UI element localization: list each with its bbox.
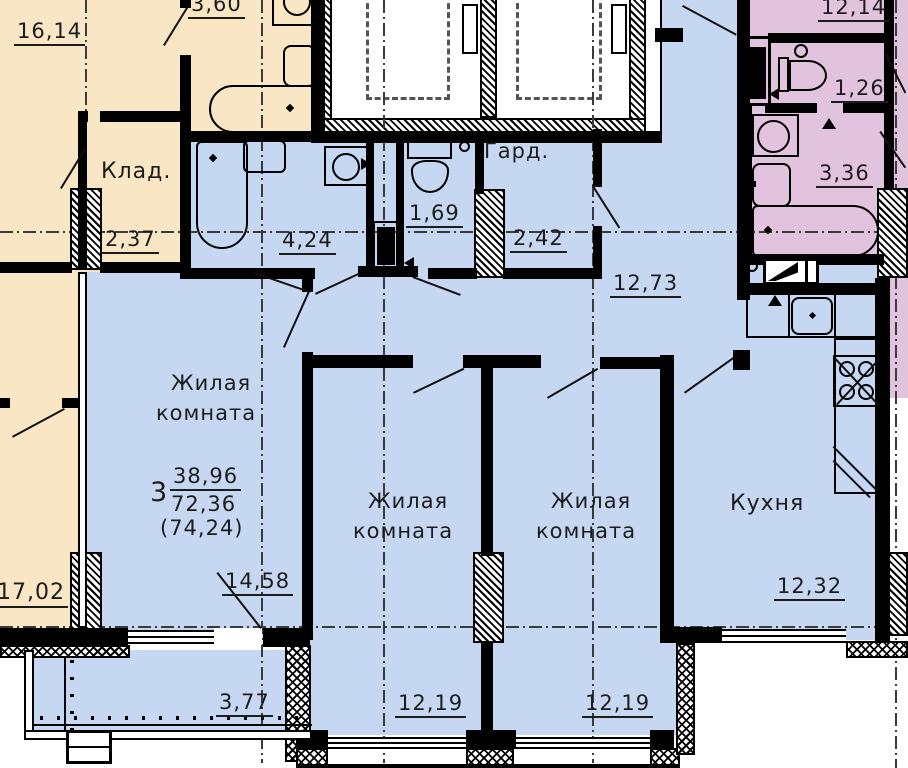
window — [128, 630, 214, 644]
area-2-42: 2,42 — [510, 227, 567, 253]
wall — [660, 355, 674, 643]
summary-living-area: 38,96 — [170, 465, 241, 491]
column — [473, 552, 504, 643]
room2-name-line1: Жилая — [368, 490, 448, 512]
wall — [843, 103, 884, 113]
exterior-wall — [846, 641, 908, 658]
exterior-wall — [0, 645, 130, 658]
label-klad: Клад. — [101, 160, 171, 183]
wall — [463, 355, 481, 368]
toilet-bowl — [789, 60, 827, 91]
balcony-rail — [64, 658, 66, 732]
vent-circle — [746, 260, 758, 272]
toilet-tank — [778, 57, 789, 92]
door-direction-marker — [404, 257, 414, 269]
area-17-02: 17,02 — [0, 581, 68, 608]
summary-rooms-count: 3 — [150, 479, 168, 507]
area-12-19-a: 12,19 — [395, 692, 466, 718]
wall — [305, 355, 413, 368]
vent-circle — [459, 141, 470, 152]
washing-machine-drum — [757, 120, 790, 153]
wall — [191, 268, 315, 279]
axis-line — [0, 626, 890, 628]
wall — [0, 398, 10, 408]
faucet — [260, 136, 268, 142]
elevator-wall — [480, 0, 497, 118]
party-wall — [78, 272, 87, 628]
window — [328, 737, 467, 749]
area-3-60: 3,60 — [188, 0, 245, 19]
wall — [660, 627, 722, 643]
summary-total-area: 72,36 — [171, 493, 236, 515]
wall — [481, 368, 493, 556]
faucet — [748, 181, 756, 187]
label-gard: Гард. — [484, 140, 549, 162]
door-direction-marker — [361, 158, 371, 170]
wall — [296, 764, 680, 768]
bathtub — [196, 141, 248, 249]
door-direction-marker — [769, 88, 779, 100]
wall — [302, 352, 313, 640]
wall — [655, 28, 683, 42]
elevator-door-frame — [611, 4, 627, 54]
washing-machine-drum — [332, 153, 360, 181]
area-12-14: 12,14 — [818, 0, 889, 22]
elevator-door-frame — [462, 4, 478, 54]
exterior-wall — [676, 643, 695, 755]
door-direction-marker — [822, 118, 836, 129]
balcony-door-gap — [214, 628, 262, 645]
wall — [100, 262, 188, 273]
area-12-73: 12,73 — [610, 272, 681, 298]
balcony-glazing — [24, 650, 34, 740]
wall — [503, 268, 602, 279]
wall — [428, 268, 477, 279]
sink — [752, 163, 791, 207]
label-kitchen: Кухня — [730, 492, 804, 515]
wall — [481, 355, 541, 368]
wall — [78, 111, 87, 269]
bathtub — [209, 85, 316, 133]
sink — [243, 140, 286, 173]
area-16-14: 16,14 — [14, 20, 85, 46]
electrical-panel-divider — [805, 258, 808, 285]
wall — [765, 103, 817, 113]
room1-name-line2: комната — [156, 402, 256, 424]
room3-name-line1: Жилая — [551, 490, 631, 512]
duct — [748, 47, 766, 99]
wall — [600, 357, 666, 369]
floor-plan: 16,14Клад.2,373,6017,024,241,69Гард.2,42… — [0, 0, 908, 768]
unit-left-room-fill — [0, 270, 80, 630]
toilet-tank — [407, 141, 452, 159]
wall — [0, 628, 128, 645]
area-3-36: 3,36 — [816, 162, 873, 188]
area-4-24: 4,24 — [279, 229, 336, 255]
window — [514, 737, 651, 749]
sink — [283, 45, 316, 87]
area-12-19-b: 12,19 — [582, 692, 653, 718]
wall — [733, 350, 750, 370]
elevator-car — [366, 0, 450, 100]
wall — [475, 140, 484, 194]
room1-name-line1: Жилая — [171, 372, 251, 394]
area-1-69: 1,69 — [406, 202, 463, 228]
vent-circle — [794, 44, 808, 58]
elevator-car — [516, 0, 602, 100]
wall — [481, 643, 493, 733]
duct — [377, 227, 395, 265]
counter-divider — [788, 293, 790, 338]
counter-divider — [834, 293, 836, 338]
window — [722, 629, 846, 643]
area-2-37: 2,37 — [102, 228, 159, 254]
area-3-77: 3,77 — [216, 691, 273, 717]
wall — [466, 730, 516, 748]
summary-total-with-balcony: (74,24) — [160, 517, 244, 539]
area-12-32: 12,32 — [774, 575, 845, 601]
wall — [0, 262, 72, 273]
drain-box-divider — [66, 746, 112, 748]
wall — [650, 730, 674, 748]
door-direction-marker — [768, 295, 782, 306]
wall — [768, 33, 884, 43]
axis-line — [85, 0, 87, 115]
balcony-rail — [34, 724, 312, 726]
wall — [100, 111, 186, 122]
room3-name-line2: комната — [536, 520, 636, 542]
wall — [263, 628, 310, 647]
room2-name-line2: комната — [353, 520, 453, 542]
area-1-26: 1,26 — [831, 77, 888, 103]
wall — [180, 55, 191, 279]
wall — [593, 129, 602, 187]
column — [474, 189, 505, 278]
area-14-58: 14,58 — [222, 570, 293, 596]
wall — [593, 226, 602, 279]
axis-line — [592, 0, 594, 763]
axis-line — [383, 0, 385, 763]
wall — [62, 398, 78, 408]
